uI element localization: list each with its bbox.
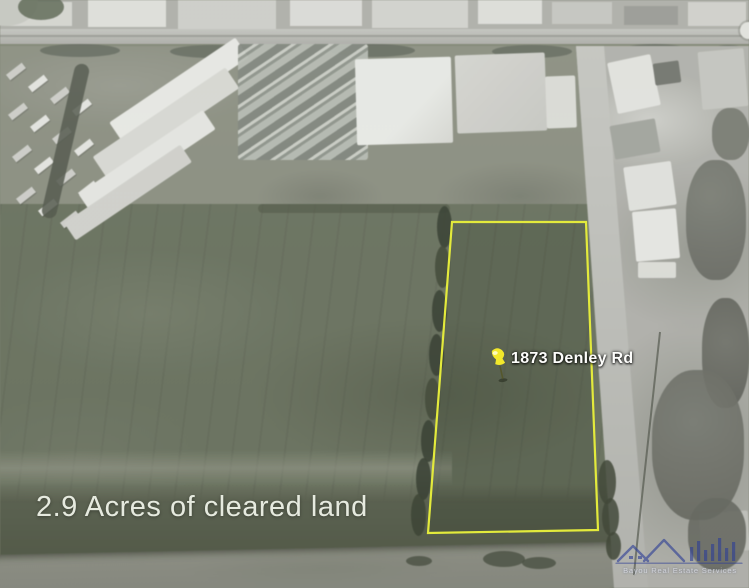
address-label: 1873 Denley Rd [511, 349, 633, 368]
brand-logo-icon [614, 536, 746, 566]
pin-head [491, 347, 505, 366]
logo-rooflines [616, 540, 742, 563]
aerial-property-photo: 1873 Denley Rd 2.9 Acres of cleared land… [0, 0, 749, 588]
brand-name: Bayou Real Estate Services [614, 567, 746, 575]
parcel-boundary [428, 222, 598, 533]
acreage-caption: 2.9 Acres of cleared land [36, 492, 368, 524]
brand-watermark: Bayou Real Estate Services [614, 536, 746, 575]
pin-needle [500, 366, 503, 379]
